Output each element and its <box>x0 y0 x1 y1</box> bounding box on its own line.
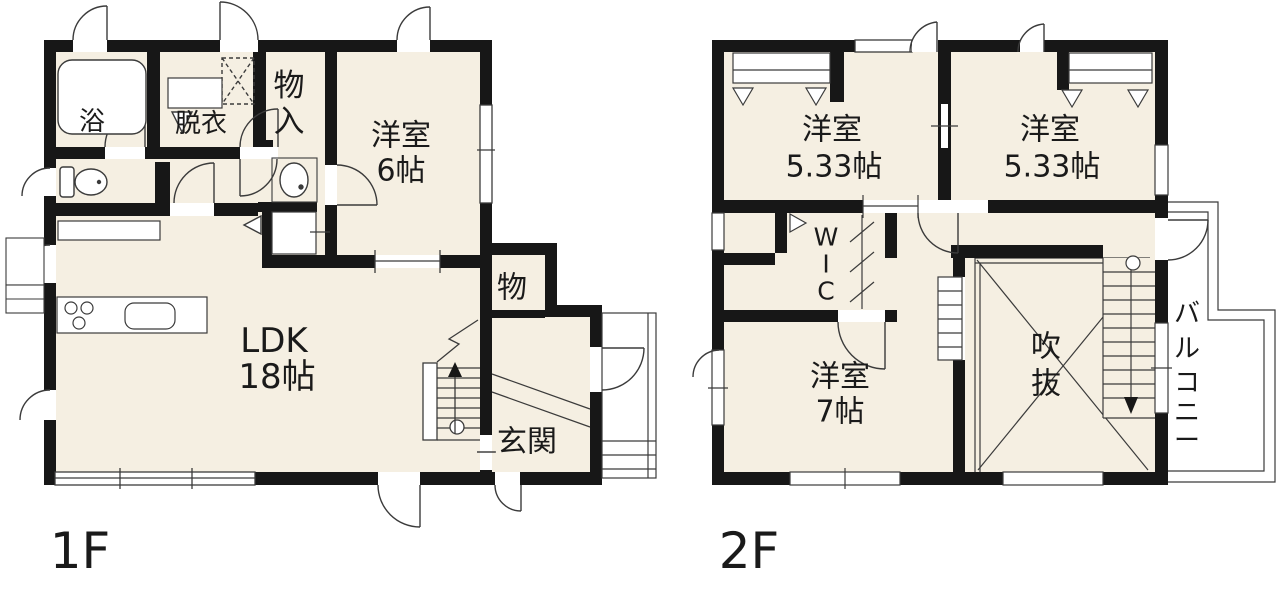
floorplan-svg: 浴 脱衣 物 入 洋室 6帖 LDK 18帖 物 玄関 1F <box>0 0 1280 591</box>
room-label-west6: 洋室 <box>371 119 431 154</box>
room-label-west533-right-size: 5.33帖 <box>1004 150 1101 185</box>
floor-plan-2f: 洋室 5.33帖 洋室 5.33帖 W I C 洋室 7帖 吹 抜 バ ル コ … <box>693 22 1275 580</box>
kitchen-sink <box>125 303 175 329</box>
room-label-wic-char: C <box>817 277 834 306</box>
f2-stairs-area <box>1103 258 1155 418</box>
room-label-balcony-char: ニ <box>1174 398 1200 428</box>
room-label-west533-left: 洋室 <box>802 113 862 148</box>
floorplan-canvas: 浴 脱衣 物 入 洋室 6帖 LDK 18帖 物 玄関 1F <box>0 0 1280 591</box>
room-label-balcony-char: ル <box>1174 334 1200 364</box>
room-label-west7-size: 7帖 <box>815 395 864 430</box>
room-label-bath: 浴 <box>79 107 105 137</box>
floor-plan-1f: 浴 脱衣 物 入 洋室 6帖 LDK 18帖 物 玄関 1F <box>6 2 656 580</box>
stove-burner <box>73 317 85 329</box>
vanity-counter <box>168 78 222 108</box>
room-label-wic-char: I <box>822 250 829 279</box>
room-label-west6-size: 6帖 <box>376 154 425 189</box>
washbasin <box>280 163 308 197</box>
utility-box <box>272 212 316 254</box>
stove-burner <box>65 302 77 314</box>
room-label-void-char: 抜 <box>1031 367 1061 402</box>
cabinet <box>58 221 160 240</box>
room-label-west7: 洋室 <box>810 360 870 395</box>
room-label-storage-char: 入 <box>274 104 305 140</box>
room-label-dressing: 脱衣 <box>175 109 227 139</box>
room-label-entrance: 玄関 <box>497 425 557 460</box>
room-label-west533-left-size: 5.33帖 <box>786 150 883 185</box>
room-label-west533-right: 洋室 <box>1020 113 1080 148</box>
floor-label-1f: 1F <box>50 522 111 580</box>
room-label-ldk-size: 18帖 <box>238 357 315 397</box>
side-porch <box>6 238 44 285</box>
floor-label-2f: 2F <box>719 522 780 580</box>
room-label-balcony-char: ー <box>1174 426 1200 456</box>
stove-burner <box>81 302 93 314</box>
room-label-balcony-char: コ <box>1174 368 1200 398</box>
room-label-closet: 物 <box>497 271 527 306</box>
room-label-balcony-char: バ <box>1174 299 1200 329</box>
toilet-tank <box>60 167 74 197</box>
f2-railing <box>938 277 962 360</box>
room-label-void-char: 吹 <box>1031 330 1061 365</box>
toilet-bowl <box>75 169 107 195</box>
room-label-ldk: LDK <box>240 321 309 361</box>
room-label-storage-char: 物 <box>274 68 305 104</box>
room-label-wic-char: W <box>814 223 839 252</box>
